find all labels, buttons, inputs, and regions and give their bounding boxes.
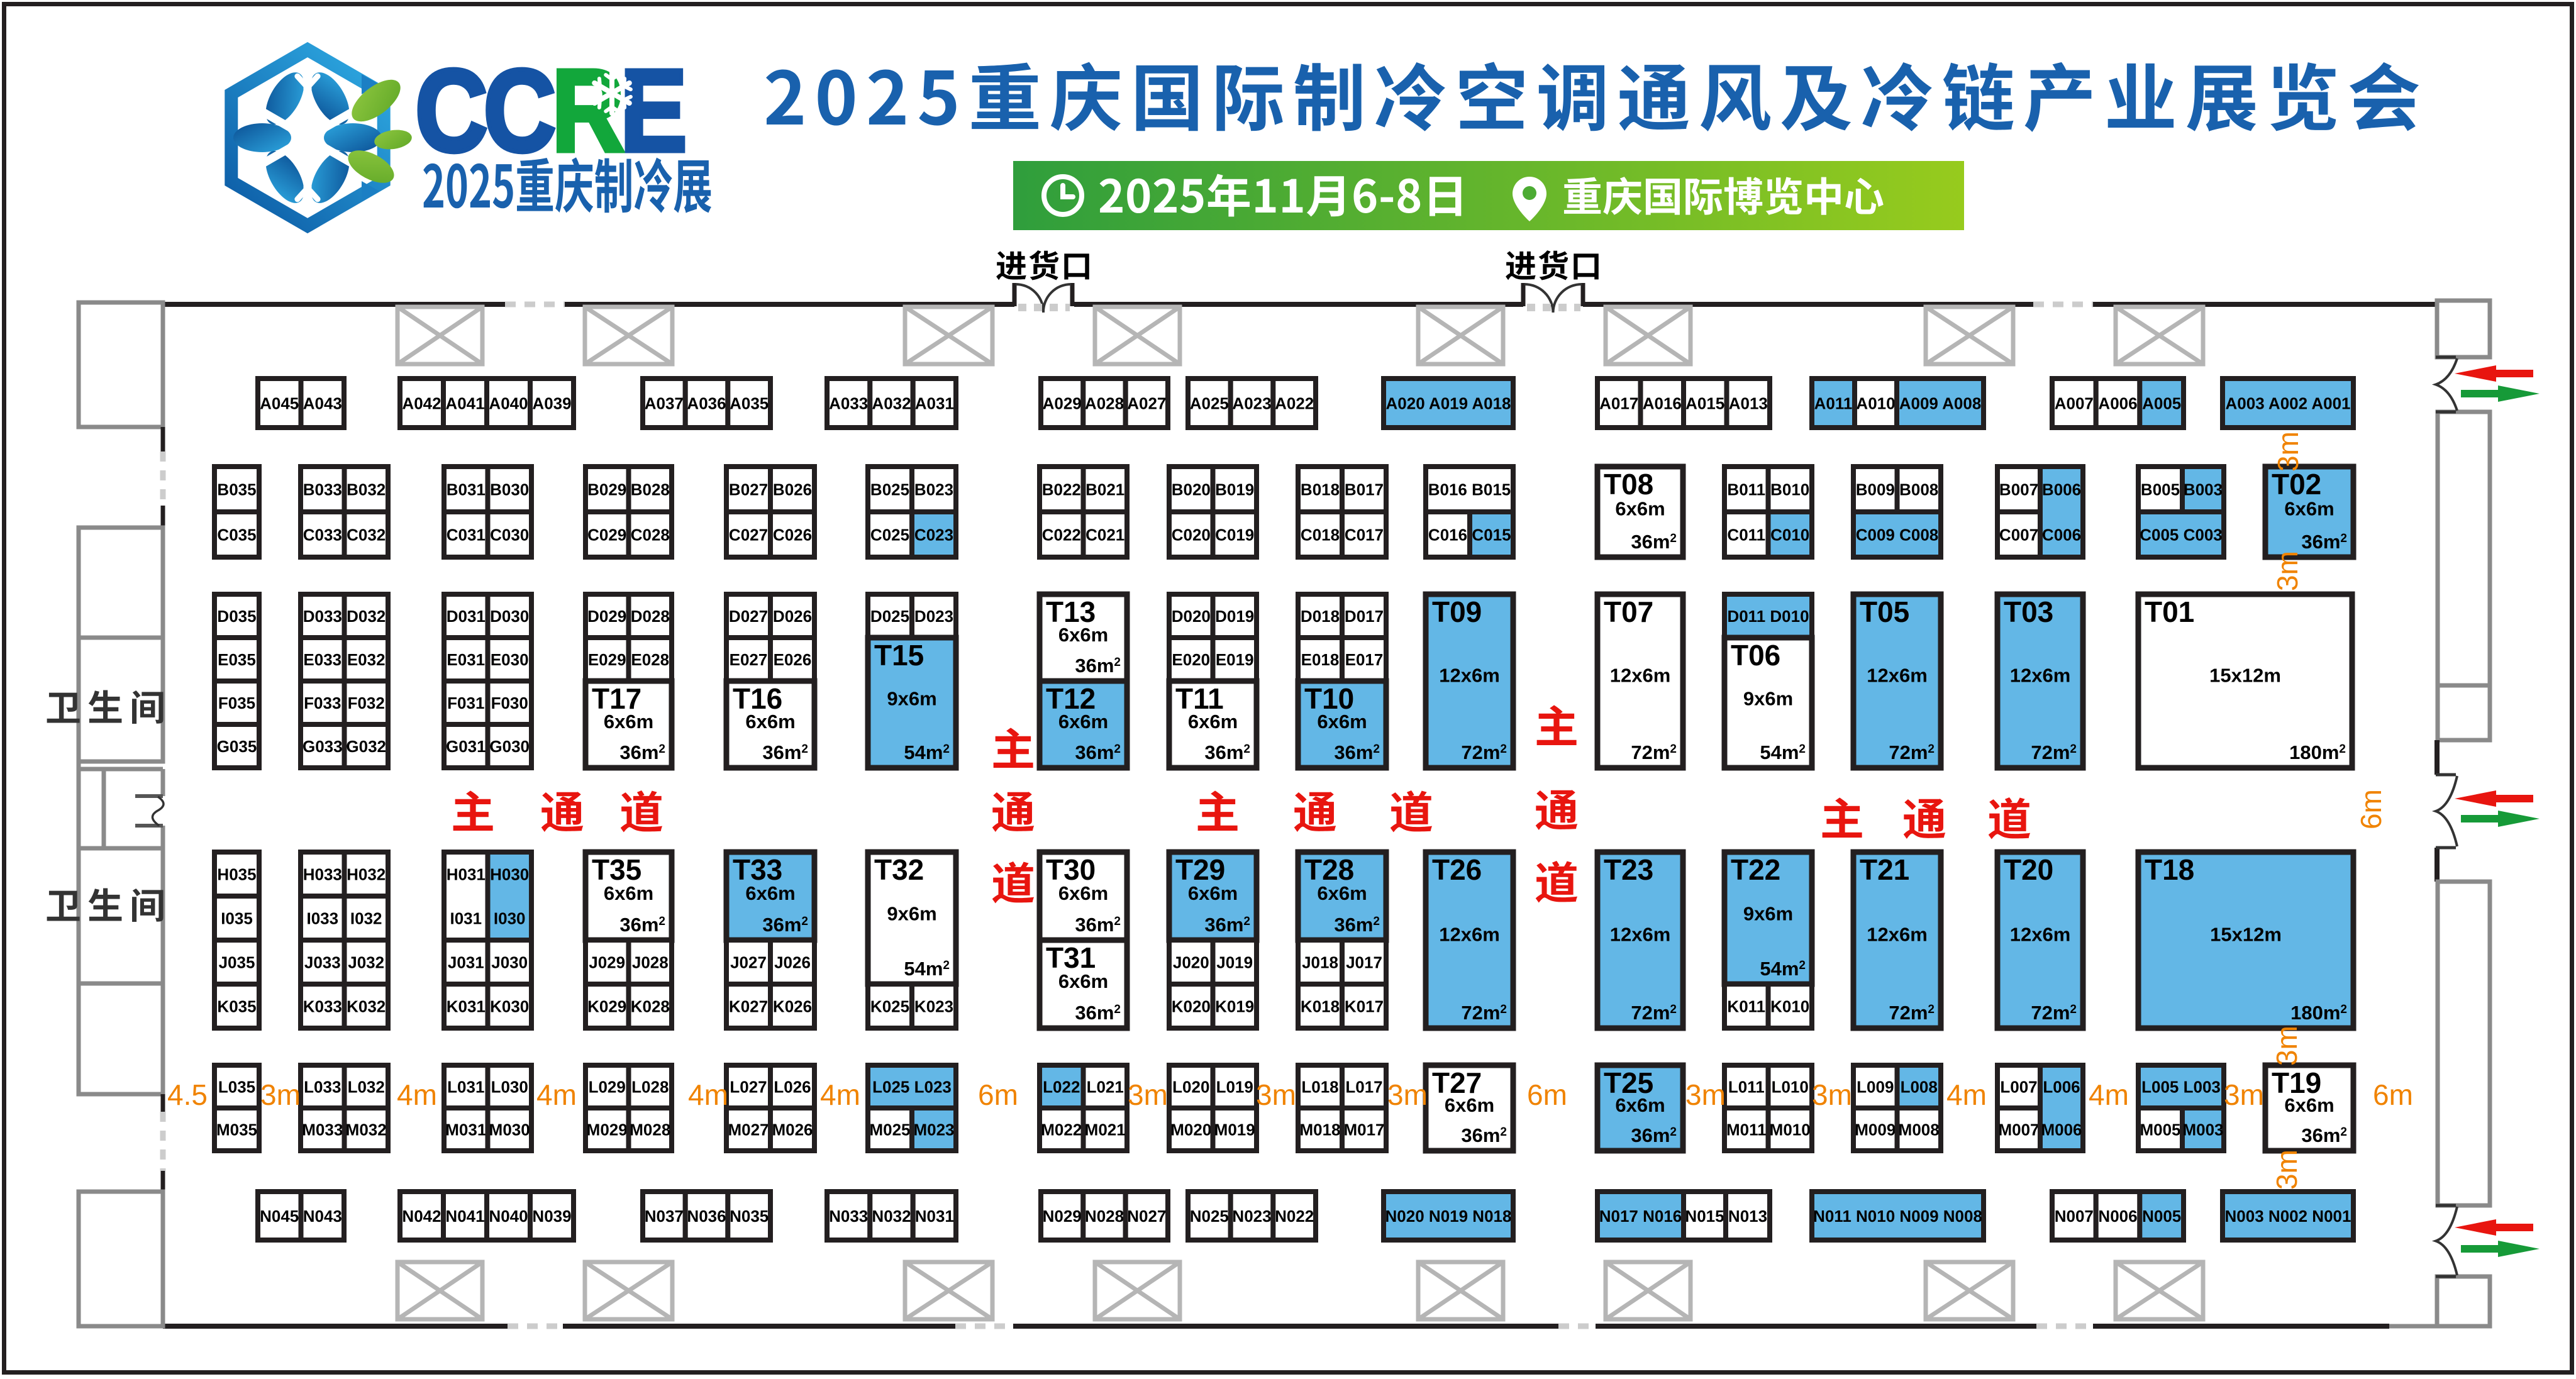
- svg-text:4.5: 4.5: [167, 1078, 208, 1111]
- svg-text:K010: K010: [1770, 997, 1809, 1016]
- svg-text:G032: G032: [346, 737, 386, 756]
- svg-text:N029: N029: [1043, 1207, 1082, 1226]
- svg-text:C015: C015: [1472, 525, 1511, 544]
- svg-text:L021: L021: [1087, 1077, 1124, 1096]
- svg-text:M005: M005: [2140, 1120, 2180, 1139]
- svg-text:36m2: 36m2: [1204, 914, 1250, 936]
- svg-text:J030: J030: [491, 953, 528, 972]
- svg-text:C021: C021: [1085, 525, 1124, 544]
- svg-text:54m2: 54m2: [904, 741, 950, 763]
- svg-text:6x6m: 6x6m: [745, 711, 795, 733]
- svg-text:36m2: 36m2: [1075, 914, 1121, 936]
- svg-text:T26: T26: [1432, 853, 1482, 886]
- svg-text:72m2: 72m2: [1461, 741, 1507, 763]
- svg-text:B019: B019: [1215, 480, 1254, 499]
- svg-text:E026: E026: [774, 650, 812, 669]
- svg-text:I031: I031: [450, 909, 482, 928]
- svg-text:A033: A033: [829, 394, 868, 413]
- svg-text:D031: D031: [447, 607, 486, 626]
- svg-text:H031: H031: [447, 865, 486, 883]
- svg-text:180m2: 180m2: [2289, 741, 2346, 763]
- svg-text:4m: 4m: [536, 1078, 577, 1111]
- svg-text:N025: N025: [1190, 1207, 1229, 1226]
- svg-text:L035: L035: [218, 1077, 255, 1096]
- svg-text:E033: E033: [303, 650, 341, 669]
- svg-text:T18: T18: [2145, 853, 2194, 886]
- svg-text:L011: L011: [1728, 1077, 1765, 1096]
- svg-text:T28: T28: [1304, 853, 1354, 886]
- svg-text:36m2: 36m2: [1334, 914, 1380, 936]
- svg-text:T20: T20: [2004, 853, 2053, 886]
- svg-text:M007: M007: [1998, 1120, 2039, 1139]
- svg-text:F031: F031: [447, 694, 484, 712]
- svg-text:54m2: 54m2: [1760, 958, 1806, 980]
- svg-text:T21: T21: [1860, 853, 1909, 886]
- svg-text:N013: N013: [1728, 1207, 1767, 1226]
- svg-text:12x6m: 12x6m: [1867, 665, 1928, 687]
- svg-text:12x6m: 12x6m: [1610, 665, 1671, 687]
- svg-text:A035: A035: [730, 394, 769, 413]
- svg-text:K019: K019: [1215, 997, 1254, 1016]
- svg-text:C035: C035: [217, 525, 256, 544]
- svg-text:D028: D028: [631, 607, 670, 626]
- svg-text:6x6m: 6x6m: [1058, 624, 1108, 646]
- svg-text:N027: N027: [1127, 1207, 1166, 1226]
- svg-text:A015: A015: [1685, 394, 1724, 413]
- svg-text:3m: 3m: [1128, 1078, 1168, 1111]
- svg-text:M028: M028: [630, 1120, 670, 1139]
- svg-text:N042: N042: [402, 1207, 441, 1226]
- svg-text:A039: A039: [532, 394, 571, 413]
- svg-text:M010: M010: [1770, 1120, 1811, 1139]
- svg-text:B007: B007: [1999, 480, 2038, 499]
- svg-text:M029: M029: [587, 1120, 628, 1139]
- svg-text:4m: 4m: [2089, 1078, 2129, 1111]
- svg-text:6x6m: 6x6m: [1188, 711, 1238, 733]
- svg-text:L005 L003: L005 L003: [2141, 1077, 2221, 1096]
- svg-text:D011 D010: D011 D010: [1727, 607, 1809, 626]
- svg-text:M032: M032: [346, 1120, 387, 1139]
- svg-text:6x6m: 6x6m: [1188, 882, 1238, 904]
- svg-text:180m2: 180m2: [2290, 1002, 2347, 1024]
- svg-text:G035: G035: [217, 737, 257, 756]
- svg-text:D025: D025: [870, 607, 909, 626]
- svg-text:K011: K011: [1727, 997, 1765, 1016]
- svg-text:36m2: 36m2: [1075, 741, 1121, 763]
- svg-text:L026: L026: [774, 1077, 811, 1096]
- svg-text:N011 N010 N009 N008: N011 N010 N009 N008: [1813, 1207, 1982, 1226]
- svg-text:36m2: 36m2: [762, 914, 808, 936]
- svg-text:4m: 4m: [1946, 1078, 1987, 1111]
- svg-text:E035: E035: [218, 650, 256, 669]
- svg-text:A042: A042: [402, 394, 441, 413]
- svg-text:L025 L023: L025 L023: [872, 1077, 952, 1096]
- svg-text:B006: B006: [2042, 480, 2081, 499]
- svg-text:A045: A045: [260, 394, 299, 413]
- svg-text:B008: B008: [1899, 480, 1938, 499]
- svg-text:36m2: 36m2: [1631, 1124, 1677, 1146]
- svg-text:N039: N039: [532, 1207, 571, 1226]
- svg-text:K018: K018: [1301, 997, 1340, 1016]
- svg-text:K032: K032: [347, 997, 386, 1016]
- svg-text:L022: L022: [1043, 1077, 1080, 1096]
- svg-text:3m: 3m: [1387, 1078, 1428, 1111]
- svg-text:6x6m: 6x6m: [2284, 1094, 2334, 1116]
- svg-text:C007: C007: [1999, 525, 2038, 544]
- svg-text:G033: G033: [303, 737, 343, 756]
- svg-text:T30: T30: [1046, 853, 1096, 886]
- svg-text:L027: L027: [730, 1077, 767, 1096]
- svg-text:M009: M009: [1855, 1120, 1896, 1139]
- svg-text:12x6m: 12x6m: [2010, 665, 2071, 687]
- svg-text:M030: M030: [489, 1120, 530, 1139]
- svg-text:M017: M017: [1343, 1120, 1384, 1139]
- svg-text:J027: J027: [730, 953, 767, 972]
- svg-text:N022: N022: [1275, 1207, 1314, 1226]
- svg-text:L029: L029: [589, 1077, 626, 1096]
- svg-text:T05: T05: [1860, 595, 1909, 628]
- svg-text:A011: A011: [1814, 394, 1853, 413]
- svg-text:D018: D018: [1301, 607, 1340, 626]
- svg-text:N031: N031: [915, 1207, 954, 1226]
- svg-text:D033: D033: [303, 607, 342, 626]
- svg-text:E019: E019: [1216, 650, 1254, 669]
- svg-text:N036: N036: [687, 1207, 726, 1226]
- svg-text:A032: A032: [872, 394, 911, 413]
- svg-text:L028: L028: [631, 1077, 669, 1096]
- svg-text:T31: T31: [1046, 941, 1096, 974]
- svg-text:A007: A007: [2055, 394, 2094, 413]
- svg-text:N040: N040: [489, 1207, 528, 1226]
- svg-text:B005: B005: [2141, 480, 2180, 499]
- svg-text:B009: B009: [1856, 480, 1895, 499]
- svg-text:72m2: 72m2: [1889, 1002, 1935, 1024]
- svg-text:A031: A031: [915, 394, 954, 413]
- svg-text:C017: C017: [1345, 525, 1384, 544]
- svg-text:N017 N016: N017 N016: [1599, 1207, 1682, 1226]
- svg-text:A041: A041: [445, 394, 484, 413]
- svg-text:M022: M022: [1041, 1120, 1082, 1139]
- svg-text:B030: B030: [490, 480, 529, 499]
- svg-text:B003: B003: [2184, 480, 2223, 499]
- svg-text:H032: H032: [347, 865, 386, 883]
- svg-text:K033: K033: [303, 997, 342, 1016]
- svg-text:F032: F032: [348, 694, 385, 712]
- svg-text:D032: D032: [347, 607, 386, 626]
- svg-text:6x6m: 6x6m: [1445, 1094, 1494, 1116]
- svg-text:6m: 6m: [1527, 1078, 1567, 1111]
- svg-text:B026: B026: [773, 480, 812, 499]
- svg-text:F030: F030: [491, 694, 528, 712]
- svg-text:12x6m: 12x6m: [1610, 924, 1671, 946]
- svg-text:K035: K035: [217, 997, 256, 1016]
- svg-text:D030: D030: [490, 607, 529, 626]
- svg-text:36m2: 36m2: [762, 741, 808, 763]
- svg-text:L031: L031: [447, 1077, 484, 1096]
- svg-text:6x6m: 6x6m: [604, 882, 653, 904]
- svg-text:K027: K027: [729, 997, 768, 1016]
- svg-text:M027: M027: [728, 1120, 769, 1139]
- svg-text:E032: E032: [347, 650, 386, 669]
- svg-text:N045: N045: [260, 1207, 299, 1226]
- svg-text:M021: M021: [1085, 1120, 1126, 1139]
- svg-text:6x6m: 6x6m: [604, 711, 653, 733]
- svg-text:K020: K020: [1172, 997, 1211, 1016]
- svg-text:12x6m: 12x6m: [1867, 924, 1928, 946]
- svg-text:D029: D029: [587, 607, 626, 626]
- svg-text:A027: A027: [1127, 394, 1166, 413]
- svg-text:N037: N037: [645, 1207, 684, 1226]
- svg-text:D019: D019: [1215, 607, 1254, 626]
- svg-text:36m2: 36m2: [1075, 1002, 1121, 1024]
- svg-text:C027: C027: [729, 525, 768, 544]
- svg-text:12x6m: 12x6m: [1439, 665, 1500, 687]
- svg-text:D026: D026: [773, 607, 812, 626]
- svg-text:K026: K026: [773, 997, 812, 1016]
- svg-text:A006: A006: [2098, 394, 2137, 413]
- svg-text:A040: A040: [489, 394, 528, 413]
- svg-text:L006: L006: [2043, 1077, 2080, 1096]
- svg-text:L007: L007: [2000, 1077, 2037, 1096]
- svg-text:3m: 3m: [1685, 1078, 1726, 1111]
- svg-text:B032: B032: [347, 480, 386, 499]
- svg-text:E029: E029: [588, 650, 626, 669]
- svg-text:N041: N041: [445, 1207, 484, 1226]
- svg-text:D020: D020: [1172, 607, 1211, 626]
- svg-text:L030: L030: [491, 1077, 528, 1096]
- svg-text:3m: 3m: [2271, 551, 2304, 591]
- svg-text:L009: L009: [1857, 1077, 1894, 1096]
- svg-text:L008: L008: [1901, 1077, 1938, 1096]
- svg-text:36m2: 36m2: [2301, 531, 2347, 553]
- svg-text:J019: J019: [1216, 953, 1253, 972]
- svg-text:B016 B015: B016 B015: [1428, 480, 1511, 499]
- svg-text:54m2: 54m2: [1760, 741, 1806, 763]
- svg-text:M020: M020: [1170, 1120, 1211, 1139]
- svg-text:L010: L010: [1772, 1077, 1809, 1096]
- svg-text:6x6m: 6x6m: [1058, 970, 1108, 992]
- svg-text:B018: B018: [1301, 480, 1340, 499]
- svg-text:A037: A037: [645, 394, 684, 413]
- svg-text:B025: B025: [870, 480, 909, 499]
- svg-text:T23: T23: [1604, 853, 1653, 886]
- svg-text:M023: M023: [913, 1120, 954, 1139]
- svg-text:A025: A025: [1190, 394, 1229, 413]
- svg-text:C028: C028: [631, 525, 670, 544]
- svg-text:J032: J032: [348, 953, 384, 972]
- svg-text:C031: C031: [447, 525, 486, 544]
- svg-text:72m2: 72m2: [2031, 1002, 2077, 1024]
- svg-text:E020: E020: [1172, 650, 1210, 669]
- svg-text:36m2: 36m2: [1631, 531, 1677, 553]
- svg-text:A043: A043: [303, 394, 342, 413]
- svg-text:J026: J026: [774, 953, 811, 972]
- svg-text:15x12m: 15x12m: [2209, 665, 2281, 687]
- svg-text:A003 A002 A001: A003 A002 A001: [2226, 394, 2351, 413]
- svg-text:J029: J029: [589, 953, 625, 972]
- svg-text:A022: A022: [1275, 394, 1314, 413]
- svg-text:J018: J018: [1302, 953, 1338, 972]
- svg-text:T02: T02: [2272, 468, 2321, 501]
- svg-text:C011: C011: [1727, 525, 1765, 544]
- svg-text:C006: C006: [2042, 525, 2081, 544]
- svg-text:A009 A008: A009 A008: [1899, 394, 1982, 413]
- svg-text:D017: D017: [1345, 607, 1384, 626]
- svg-text:C005 C003: C005 C003: [2140, 525, 2223, 544]
- svg-text:N007: N007: [2055, 1207, 2094, 1226]
- svg-text:9x6m: 9x6m: [887, 687, 936, 709]
- svg-text:C032: C032: [347, 525, 386, 544]
- svg-text:36m2: 36m2: [1334, 741, 1380, 763]
- svg-text:C029: C029: [587, 525, 626, 544]
- svg-text:I030: I030: [494, 909, 526, 928]
- svg-text:B031: B031: [447, 480, 486, 499]
- svg-text:6m: 6m: [978, 1078, 1018, 1111]
- svg-text:T07: T07: [1604, 595, 1653, 628]
- svg-text:A013: A013: [1729, 394, 1768, 413]
- svg-text:36m2: 36m2: [1075, 655, 1121, 677]
- svg-text:A029: A029: [1043, 394, 1082, 413]
- svg-text:M026: M026: [772, 1120, 813, 1139]
- svg-text:6m: 6m: [2373, 1078, 2413, 1111]
- svg-text:F033: F033: [304, 694, 341, 712]
- svg-text:B022: B022: [1042, 480, 1081, 499]
- svg-text:M025: M025: [869, 1120, 910, 1139]
- svg-text:C016: C016: [1428, 525, 1467, 544]
- svg-text:N015: N015: [1685, 1207, 1724, 1226]
- svg-text:N043: N043: [303, 1207, 342, 1226]
- svg-text:J028: J028: [632, 953, 669, 972]
- svg-text:N035: N035: [730, 1207, 769, 1226]
- svg-text:D035: D035: [217, 607, 256, 626]
- svg-text:4m: 4m: [688, 1078, 728, 1111]
- svg-text:L032: L032: [348, 1077, 385, 1096]
- svg-text:C022: C022: [1042, 525, 1081, 544]
- svg-text:M035: M035: [216, 1120, 257, 1139]
- svg-text:T03: T03: [2004, 595, 2053, 628]
- svg-text:9x6m: 9x6m: [1743, 687, 1793, 709]
- svg-text:A016: A016: [1643, 394, 1682, 413]
- svg-text:T22: T22: [1731, 853, 1780, 886]
- svg-text:3m: 3m: [1812, 1078, 1852, 1111]
- svg-text:N020 N019 N018: N020 N019 N018: [1385, 1207, 1512, 1226]
- svg-text:I035: I035: [221, 909, 253, 928]
- svg-text:3m: 3m: [2270, 1149, 2303, 1190]
- svg-text:H035: H035: [217, 865, 256, 883]
- svg-text:M011: M011: [1726, 1120, 1767, 1139]
- svg-text:C020: C020: [1172, 525, 1211, 544]
- svg-text:N033: N033: [829, 1207, 868, 1226]
- svg-text:L020: L020: [1172, 1077, 1209, 1096]
- svg-text:C025: C025: [870, 525, 909, 544]
- svg-text:C030: C030: [490, 525, 529, 544]
- svg-text:36m2: 36m2: [619, 914, 665, 936]
- svg-text:36m2: 36m2: [619, 741, 665, 763]
- svg-text:6x6m: 6x6m: [1317, 711, 1367, 733]
- svg-text:B028: B028: [631, 480, 670, 499]
- svg-text:B033: B033: [303, 480, 342, 499]
- svg-text:M006: M006: [2041, 1120, 2082, 1139]
- svg-text:M008: M008: [1899, 1120, 1940, 1139]
- svg-text:CCRE: CCRE: [415, 45, 683, 176]
- svg-text:G031: G031: [446, 737, 486, 756]
- svg-text:E030: E030: [491, 650, 529, 669]
- svg-text:B011: B011: [1727, 480, 1765, 499]
- svg-text:J020: J020: [1173, 953, 1209, 972]
- svg-text:3m: 3m: [2270, 1026, 2303, 1066]
- svg-text:6m: 6m: [2355, 789, 2387, 829]
- svg-text:N023: N023: [1232, 1207, 1271, 1226]
- svg-text:T32: T32: [874, 853, 924, 886]
- svg-text:D023: D023: [914, 607, 953, 626]
- svg-text:6x6m: 6x6m: [1317, 882, 1367, 904]
- svg-text:A010: A010: [1856, 394, 1895, 413]
- svg-text:15x12m: 15x12m: [2210, 924, 2282, 946]
- svg-text:6x6m: 6x6m: [2284, 498, 2334, 520]
- svg-text:L019: L019: [1216, 1077, 1253, 1096]
- svg-text:B021: B021: [1085, 480, 1124, 499]
- svg-text:E027: E027: [730, 650, 768, 669]
- svg-text:K017: K017: [1345, 997, 1384, 1016]
- svg-text:T33: T33: [733, 853, 782, 886]
- svg-text:B023: B023: [914, 480, 953, 499]
- svg-text:C019: C019: [1215, 525, 1254, 544]
- svg-text:9x6m: 9x6m: [887, 903, 936, 925]
- svg-text:36m2: 36m2: [2301, 1124, 2347, 1146]
- svg-text:6x6m: 6x6m: [745, 882, 795, 904]
- svg-text:6x6m: 6x6m: [1615, 498, 1665, 520]
- svg-text:A017: A017: [1599, 394, 1638, 413]
- svg-text:D027: D027: [729, 607, 768, 626]
- svg-text:54m2: 54m2: [904, 958, 950, 980]
- svg-text:M018: M018: [1299, 1120, 1340, 1139]
- svg-text:C010: C010: [1770, 525, 1809, 544]
- svg-text:C026: C026: [773, 525, 812, 544]
- svg-text:3m: 3m: [2272, 431, 2304, 472]
- svg-text:72m2: 72m2: [2031, 741, 2077, 763]
- svg-text:E028: E028: [631, 650, 669, 669]
- svg-text:3m: 3m: [260, 1078, 301, 1111]
- svg-text:C009 C008: C009 C008: [1856, 525, 1939, 544]
- svg-text:I032: I032: [350, 909, 382, 928]
- svg-text:C018: C018: [1301, 525, 1340, 544]
- svg-text:T01: T01: [2145, 595, 2194, 628]
- svg-text:T35: T35: [592, 853, 641, 886]
- svg-text:H033: H033: [303, 865, 342, 883]
- svg-text:B029: B029: [587, 480, 626, 499]
- svg-text:T06: T06: [1731, 639, 1780, 672]
- svg-text:F035: F035: [218, 694, 255, 712]
- svg-text:36m2: 36m2: [1461, 1124, 1507, 1146]
- svg-text:K029: K029: [587, 997, 626, 1016]
- svg-text:C033: C033: [303, 525, 342, 544]
- svg-text:4m: 4m: [820, 1078, 860, 1111]
- svg-text:B010: B010: [1770, 480, 1809, 499]
- svg-text:M033: M033: [302, 1120, 343, 1139]
- svg-text:L018: L018: [1301, 1077, 1338, 1096]
- svg-text:L033: L033: [304, 1077, 341, 1096]
- svg-text:6x6m: 6x6m: [1058, 882, 1108, 904]
- svg-text:72m2: 72m2: [1889, 741, 1935, 763]
- svg-text:N032: N032: [872, 1207, 911, 1226]
- svg-text:M003: M003: [2182, 1120, 2223, 1139]
- svg-text:A023: A023: [1232, 394, 1271, 413]
- svg-text:T15: T15: [874, 639, 924, 672]
- svg-text:B035: B035: [217, 480, 256, 499]
- svg-text:K025: K025: [870, 997, 909, 1016]
- svg-text:C023: C023: [914, 525, 953, 544]
- svg-text:3m: 3m: [1256, 1078, 1296, 1111]
